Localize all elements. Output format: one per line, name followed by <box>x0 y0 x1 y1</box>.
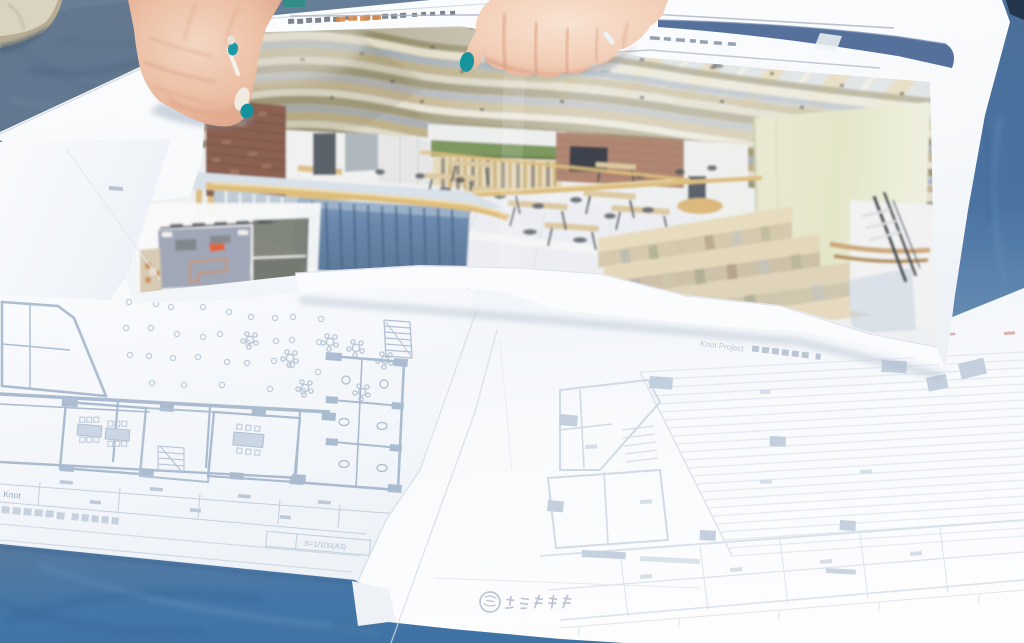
svg-text:Knot: Knot <box>3 489 22 501</box>
